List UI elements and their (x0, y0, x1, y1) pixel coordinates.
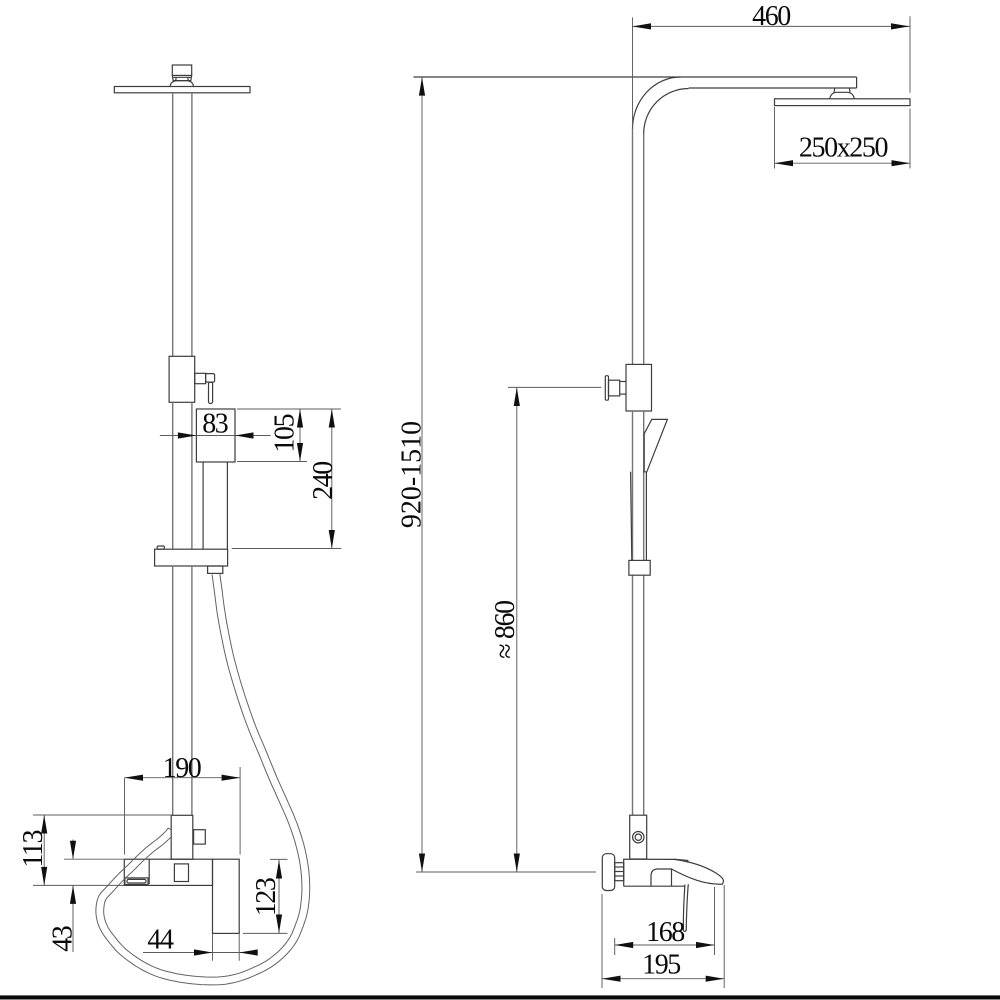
svg-text:43: 43 (48, 926, 79, 952)
svg-text:44: 44 (147, 925, 174, 956)
svg-text:190: 190 (163, 753, 201, 784)
svg-text:≈ 860: ≈ 860 (490, 601, 521, 659)
svg-text:240: 240 (308, 462, 339, 500)
svg-text:195: 195 (642, 950, 680, 981)
svg-text:460: 460 (752, 1, 790, 32)
svg-text:168: 168 (646, 917, 684, 948)
svg-text:123: 123 (251, 878, 282, 916)
svg-text:105: 105 (270, 414, 301, 452)
svg-text:920-1510: 920-1510 (397, 421, 428, 528)
svg-text:83: 83 (202, 409, 228, 440)
svg-text:113: 113 (18, 831, 49, 868)
svg-text:250x250: 250x250 (799, 133, 888, 164)
